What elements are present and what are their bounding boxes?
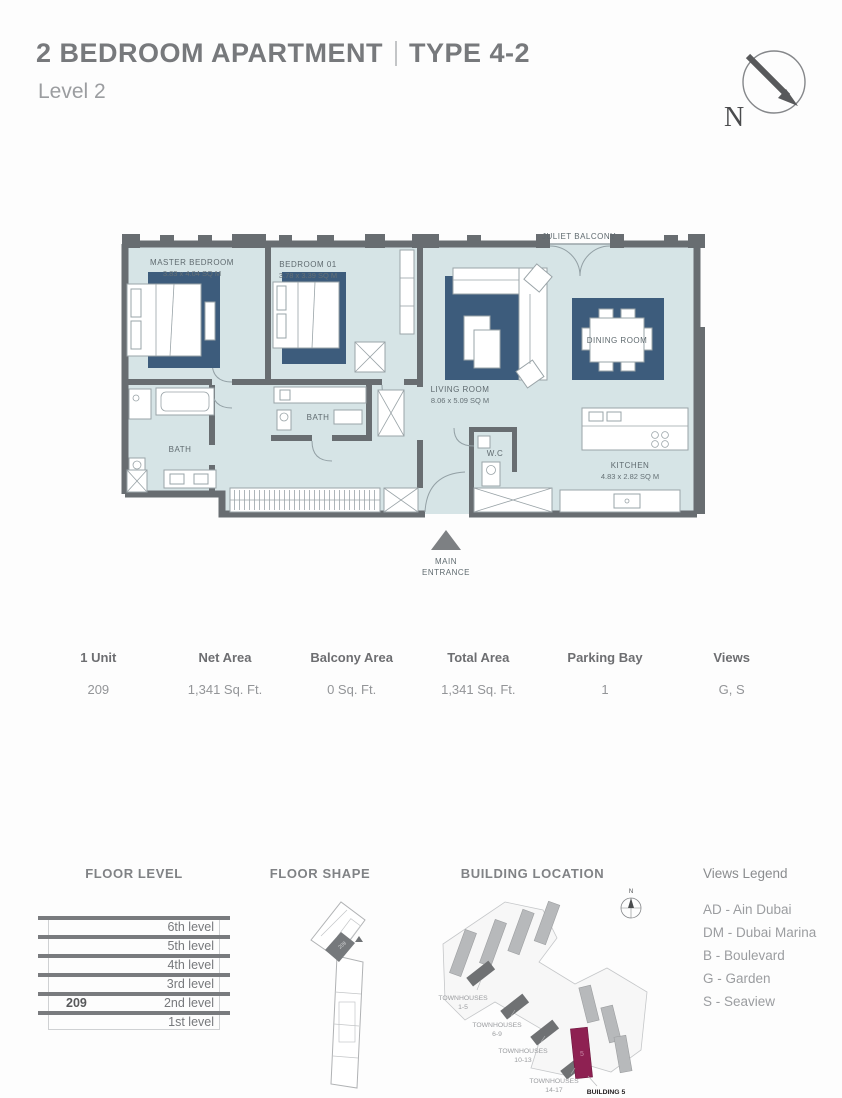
wardrobe-hatch [230, 488, 380, 512]
right-wall-step [697, 327, 705, 514]
legend-item-g: G - Garden [703, 967, 816, 990]
floor-shape-diagram: 209 [295, 892, 405, 1092]
title-type: TYPE 4-2 [409, 38, 530, 68]
entrance-triangle-icon [431, 530, 461, 550]
bedroom01-label: BEDROOM 01 [279, 260, 337, 269]
townhouses-1-5-range: 1-5 [458, 1004, 468, 1011]
north-compass-icon: N [706, 26, 816, 138]
floor-level-title: FLOOR LEVEL [38, 866, 230, 881]
table-col-total-area: Total Area 1,341 Sq. Ft. [415, 650, 542, 697]
col-value: 0 Sq. Ft. [288, 682, 415, 697]
page-title: 2 BEDROOM APARTMENTTYPE 4-2 [36, 38, 530, 69]
compass-arrow-shaft [748, 56, 788, 96]
mini-compass-icon: N [621, 889, 641, 918]
col-header: 1 Unit [35, 650, 162, 665]
entrance-label-1: MAIN [435, 557, 457, 566]
page-subtitle: Level 2 [38, 80, 106, 104]
table-col-views: Views G, S [668, 650, 795, 697]
townhouses-14-17-range: 14-17 [545, 1087, 563, 1094]
compass-n-label: N [724, 102, 744, 133]
views-legend-list: AD - Ain Dubai DM - Dubai Marina B - Bou… [703, 898, 816, 1013]
townhouses-6-9-label: TOWNHOUSES [472, 1022, 522, 1029]
unit-number-badge: 209 [66, 996, 87, 1011]
wc-label: W.C [487, 449, 504, 458]
level-row-5: 5th level [38, 939, 230, 954]
facade-columns [122, 234, 705, 248]
brochure-page: 2 BEDROOM APARTMENTTYPE 4-2 Level 2 N [0, 0, 842, 1098]
title-divider [395, 41, 397, 66]
col-header: Total Area [415, 650, 542, 665]
townhouses-14-17-label: TOWNHOUSES [529, 1078, 579, 1085]
living-room-label: LIVING ROOM [431, 385, 490, 394]
floor-shape-tower [331, 956, 363, 1088]
kitchen-dims: 4.83 x 2.82 SQ M [601, 472, 659, 481]
building-5-number: 5 [580, 1051, 584, 1058]
col-value: 1,341 Sq. Ft. [415, 682, 542, 697]
building-5-label: BUILDING 5 [587, 1089, 626, 1096]
table-col-balcony-area: Balcony Area 0 Sq. Ft. [288, 650, 415, 697]
table-col-unit: 1 Unit 209 [35, 650, 162, 697]
title-main: 2 BEDROOM APARTMENT [36, 38, 383, 68]
level-row-2: 2092nd level [38, 996, 230, 1011]
col-header: Views [668, 650, 795, 665]
master-bedroom-label: MASTER BEDROOM [150, 258, 234, 267]
table-col-net-area: Net Area 1,341 Sq. Ft. [162, 650, 289, 697]
legend-item-s: S - Seaview [703, 990, 816, 1013]
master-bedroom-dims: 3.83 x 4.04 SQ M [163, 269, 221, 278]
kitchen-label: KITCHEN [611, 461, 650, 470]
building-location-map: 5 TOWNHOUSES 1-5 TOWNHOUSES 6-9 TOWNHOUS… [425, 882, 665, 1097]
unit-info-table: 1 Unit 209 Net Area 1,341 Sq. Ft. Balcon… [35, 650, 795, 697]
level-label: 2nd level [164, 996, 214, 1010]
floor-shape-marker [355, 936, 363, 942]
bath2-label: BATH [307, 413, 330, 422]
living-room-dims: 8.06 x 5.09 SQ M [431, 396, 489, 405]
views-legend-title: Views Legend [703, 866, 788, 881]
townhouses-10-13-range: 10-13 [514, 1057, 532, 1064]
entrance-label-2: ENTRANCE [422, 568, 470, 577]
bath1-label: BATH [169, 445, 192, 454]
table-col-parking: Parking Bay 1 [542, 650, 669, 697]
col-value: 1 [542, 682, 669, 697]
legend-item-ad: AD - Ain Dubai [703, 898, 816, 921]
floor-level-diagram: 6th level 5th level 4th level 3rd level … [38, 916, 230, 1030]
legend-item-b: B - Boulevard [703, 944, 816, 967]
col-value: G, S [668, 682, 795, 697]
bedroom01-dims: 3.78 x 3.39 SQ M [279, 271, 337, 280]
floor-shape-title: FLOOR SHAPE [260, 866, 380, 881]
level-row-4: 4th level [38, 958, 230, 973]
col-value: 209 [35, 682, 162, 697]
level-row-1: 1st level [38, 1015, 230, 1030]
col-header: Balcony Area [288, 650, 415, 665]
floor-plan: DINING ROOM [112, 232, 712, 582]
mini-compass-n: N [629, 889, 633, 895]
juliet-balcony-label: JULIET BALCONY [542, 232, 616, 241]
level-row-3: 3rd level [38, 977, 230, 992]
building-location-title: BUILDING LOCATION [425, 866, 640, 881]
townhouses-1-5-label: TOWNHOUSES [438, 995, 488, 1002]
col-header: Net Area [162, 650, 289, 665]
townhouses-10-13-label: TOWNHOUSES [498, 1048, 548, 1055]
dining-room-label: DINING ROOM [587, 336, 648, 345]
townhouses-6-9-range: 6-9 [492, 1031, 502, 1038]
col-header: Parking Bay [542, 650, 669, 665]
level-row-6: 6th level [38, 920, 230, 935]
col-value: 1,341 Sq. Ft. [162, 682, 289, 697]
legend-item-dm: DM - Dubai Marina [703, 921, 816, 944]
